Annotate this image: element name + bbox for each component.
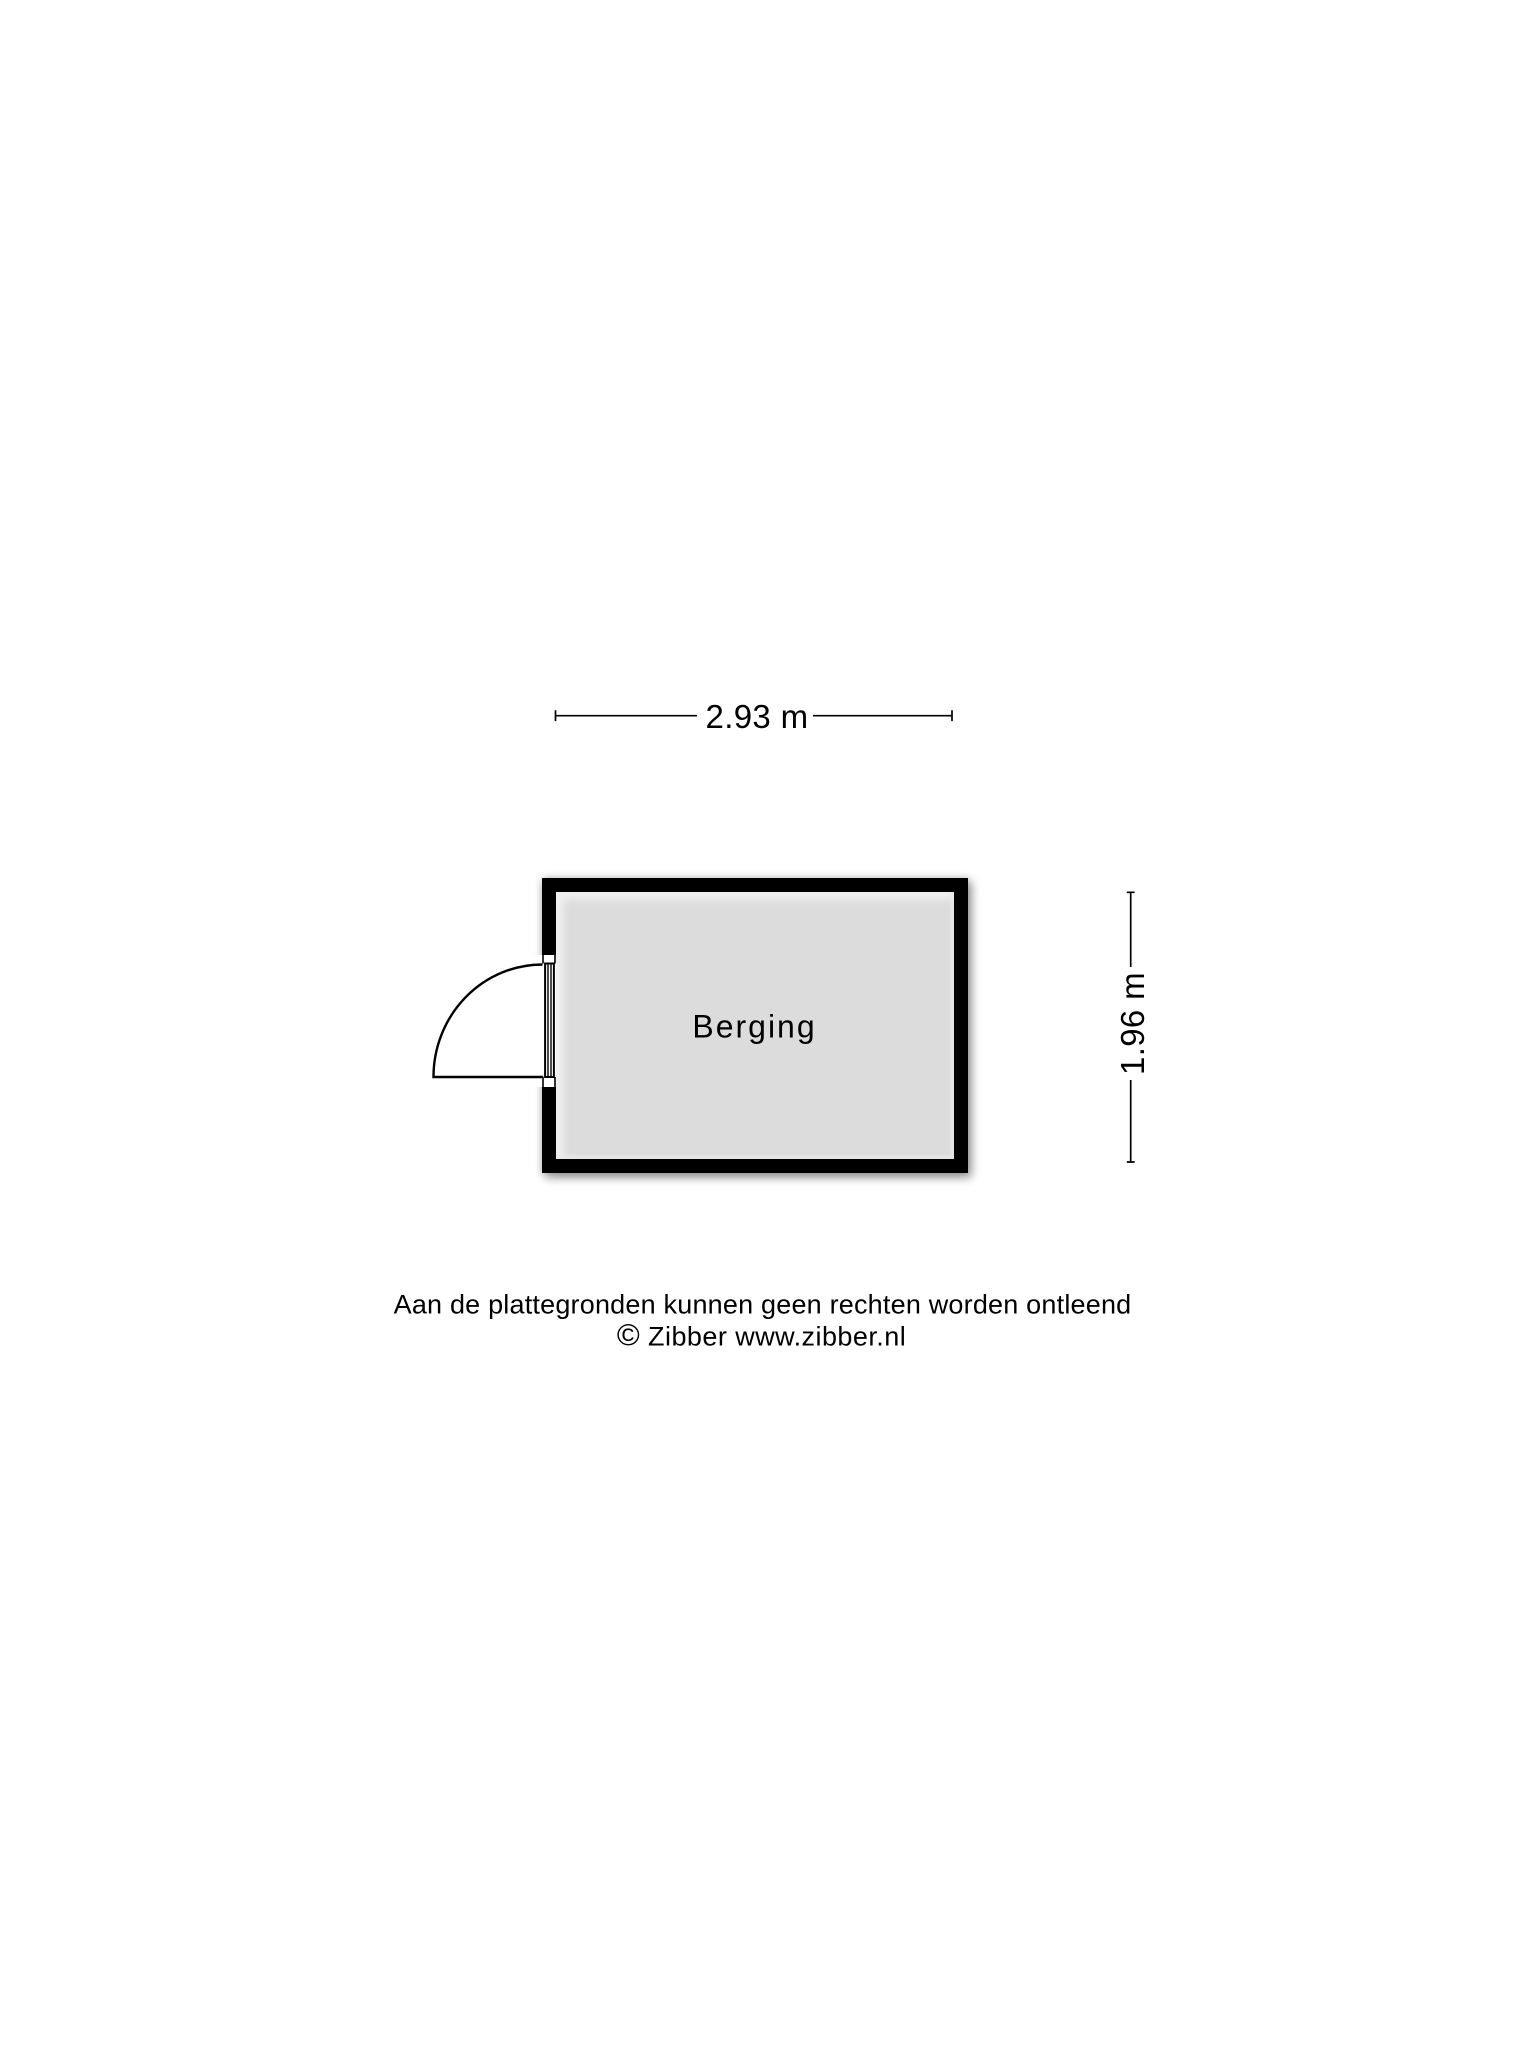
svg-text:Aan de plattegronden kunnen ge: Aan de plattegronden kunnen geen rechten… xyxy=(394,1290,1132,1320)
svg-text:Berging: Berging xyxy=(692,1008,816,1044)
svg-text:© Zibber www.zibber.nl: © Zibber www.zibber.nl xyxy=(617,1318,906,1353)
svg-text:2.93 m: 2.93 m xyxy=(706,698,809,735)
svg-text:1.96 m: 1.96 m xyxy=(1114,972,1151,1075)
